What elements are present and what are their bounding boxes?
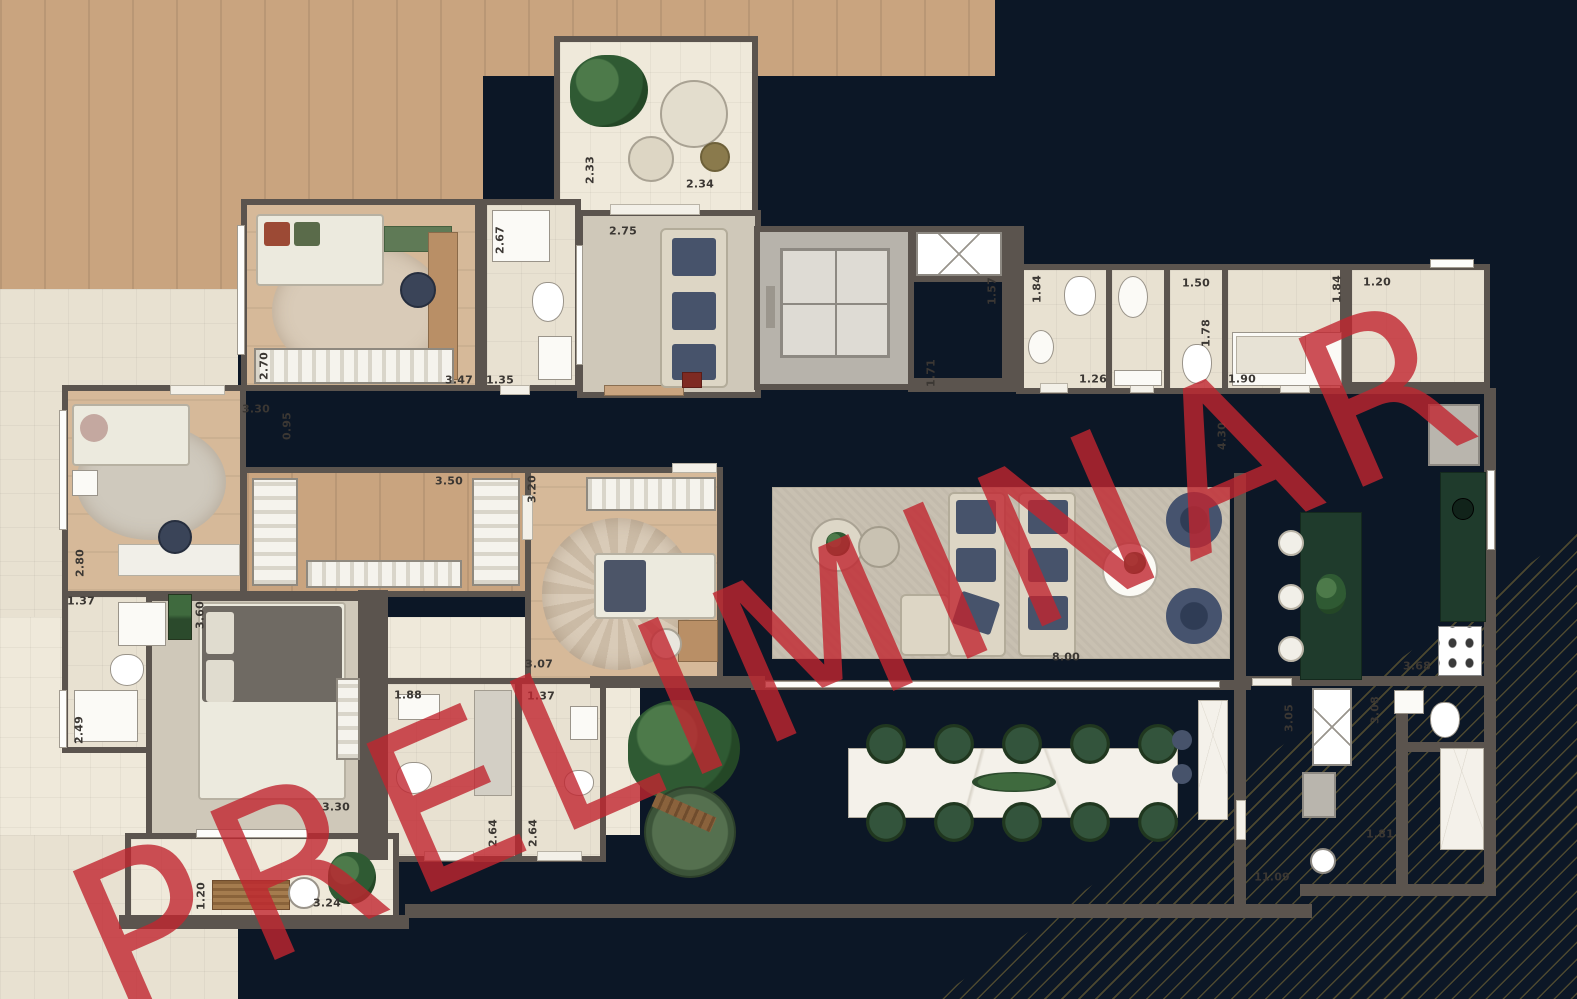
dimension-label: 2.49 [73,716,86,744]
dimension-label: 2.75 [609,225,637,238]
dining-chair [934,802,974,842]
pouf-large [660,80,728,148]
dimension-label: 1.88 [394,689,422,702]
toilet [1430,702,1460,738]
dimension-label: 3.60 [194,601,207,629]
door-service-a [1040,383,1068,393]
dimension-label: 3.07 [525,658,553,671]
sofa-cushion [1028,548,1068,582]
dining-chair [866,724,906,764]
floor-plan-canvas: 2.332.342.752.672.703.471.353.300.951.57… [0,0,1577,999]
wall [1340,382,1490,394]
wall [358,590,388,860]
armchair [1166,588,1222,644]
dimension-label: 1.26 [1079,373,1107,386]
dimension-label: 1.57 [986,277,999,305]
pouf-small [628,136,674,182]
chaise [900,594,950,656]
window-bedroom1 [237,225,245,355]
shaft-bottom [1312,688,1352,766]
dimension-label: 1.81 [1366,828,1394,841]
stool [1278,530,1304,556]
dimension-label: 1.90 [1228,373,1256,386]
wall [119,915,409,929]
sofa-cushion [956,548,996,582]
table-centerpiece [972,772,1056,792]
dimension-label: 2.64 [487,819,500,847]
sofa-cushion [1028,596,1068,630]
door-bedroom2 [170,385,225,395]
dimension-label: 2.34 [686,178,714,191]
counter [1440,748,1484,850]
cooktop [1438,626,1482,676]
counter-top [1236,336,1306,374]
sofa-cushion [1028,500,1068,534]
bed-throw [604,560,646,612]
dimension-label: 1.37 [67,595,95,608]
dimension-label: 3.30 [322,801,350,814]
kitchen-sink [1452,498,1474,520]
door-terrace-foyer [610,204,700,215]
washbasin [1028,330,1054,364]
wall [1002,226,1024,392]
door-suite3 [672,463,717,473]
dimension-label: 1.84 [1331,275,1344,303]
dimension-label: 3.24 [313,897,341,910]
dining-chair [1002,802,1042,842]
shower-strip [474,690,512,796]
toilet [564,770,594,796]
dimension-label: 3.05 [1283,704,1296,732]
elevator-door [766,286,775,328]
dimension-label: 1.50 [1182,277,1210,290]
washbasin [570,706,598,740]
window-kitchen [1487,470,1495,550]
dining-chair [1070,802,1110,842]
dining-chair [934,724,974,764]
nightstand [72,470,98,496]
dimension-label: 1.37 [527,690,555,703]
balcony-bench [212,880,290,910]
dimension-label: 3.47 [445,374,473,387]
window-master-bedroom [196,829,308,838]
fridge [1428,404,1480,466]
bench-cushion [672,292,716,330]
wardrobe [336,678,360,760]
door-bath-c [424,851,474,861]
armchair [1166,492,1222,548]
washbasin [1394,690,1424,714]
pillow [206,660,234,702]
wall [1484,684,1496,896]
dimension-label: 4.30 [1216,422,1229,450]
sofa-cushion [956,500,996,534]
dimension-label: 8.00 [1052,651,1080,664]
shaft-top [916,232,1002,276]
dimension-label: 1.84 [1031,275,1044,303]
wardrobe [254,348,454,384]
desk-chair [400,272,436,308]
wall [590,676,765,688]
dimension-label: 2.67 [494,226,507,254]
desk [678,620,718,662]
laundry-sink-round [1310,848,1336,874]
wall [405,904,1312,918]
coffee-table-small [858,526,900,568]
wardrobe [586,477,716,511]
toilet [1064,276,1096,316]
pillow [80,414,108,442]
dining-chair [1138,802,1178,842]
elevator-car [780,248,890,358]
terrace-plant-large [628,700,740,800]
washbasin [538,336,572,380]
pillow-green [294,222,320,246]
vanity [118,602,166,646]
bar-stool [1172,764,1192,784]
dimension-label: 1.78 [1200,319,1213,347]
kitchen-counter [1440,472,1486,622]
dimension-label: 3.20 [526,475,539,503]
toilet [110,654,144,686]
pillow [206,612,234,654]
wardrobe [306,560,462,588]
window-master-bath [59,690,67,748]
window-bedroom2 [59,410,67,530]
dimension-label: 1.71 [925,359,938,387]
stool [1278,584,1304,610]
pillow-red [264,222,290,246]
toilet [532,282,564,322]
door-terrace-service [1236,800,1246,840]
laundry-tub [1118,276,1148,318]
bench-cushion [672,238,716,276]
dimension-label: 3.30 [242,403,270,416]
table-plant [1124,552,1146,574]
tray-table [700,142,730,172]
dimension-label: 11.09 [1254,871,1290,884]
toilet [1182,344,1212,384]
wardrobe [252,478,298,586]
window-foyer [576,245,583,365]
hall-corridor [0,0,995,76]
dimension-label: 1.20 [1363,276,1391,289]
dining-chair [1070,724,1110,764]
plant-shelf [168,594,192,640]
dimension-label: 0.95 [281,412,294,440]
decor-box [682,372,702,388]
bar-stool [1172,730,1192,750]
desk-chair [158,520,192,554]
laundry-counter [1114,370,1162,386]
wall [1234,473,1246,906]
dimension-label: 3.50 [435,475,463,488]
desk-chair [650,628,682,660]
window-living-glass-doors [765,681,1220,688]
dimension-label: 3.68 [1403,660,1431,673]
dimension-label: 2.80 [74,549,87,577]
dimension-label: 2.64 [527,819,540,847]
washer [1302,772,1336,818]
stool [1278,636,1304,662]
buffet-counter [1198,700,1228,820]
dimension-label: 2.33 [584,156,597,184]
door-bedroom1 [500,385,530,395]
dimension-label: 3.08 [1369,696,1382,724]
window-maid-room [1430,259,1474,268]
dimension-label: 1.35 [486,374,514,387]
door-bath-d [537,851,582,861]
dining-chair [1002,724,1042,764]
wall [1396,690,1408,890]
door-kitchen-service [1252,678,1292,686]
toilet [396,762,432,794]
wardrobe [472,478,520,586]
dimension-label: 2.70 [258,352,271,380]
dimension-label: 1.20 [195,882,208,910]
dining-chair [866,802,906,842]
